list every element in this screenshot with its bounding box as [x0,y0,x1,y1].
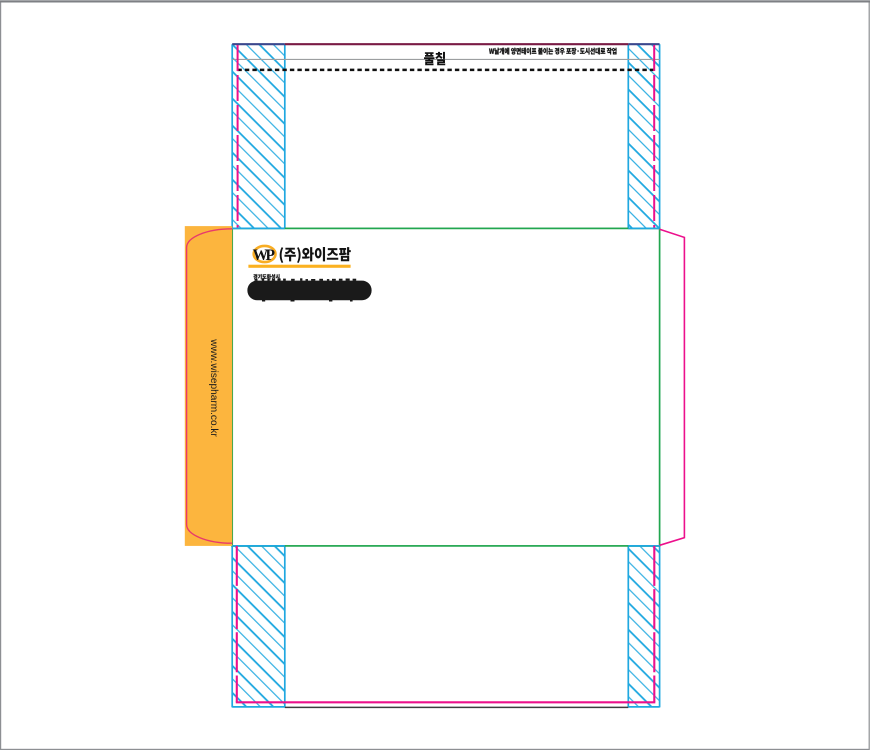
svg-text:WP: WP [253,247,276,264]
svg-text:www.wisepharm.co.kr: www.wisepharm.co.kr [208,338,219,437]
